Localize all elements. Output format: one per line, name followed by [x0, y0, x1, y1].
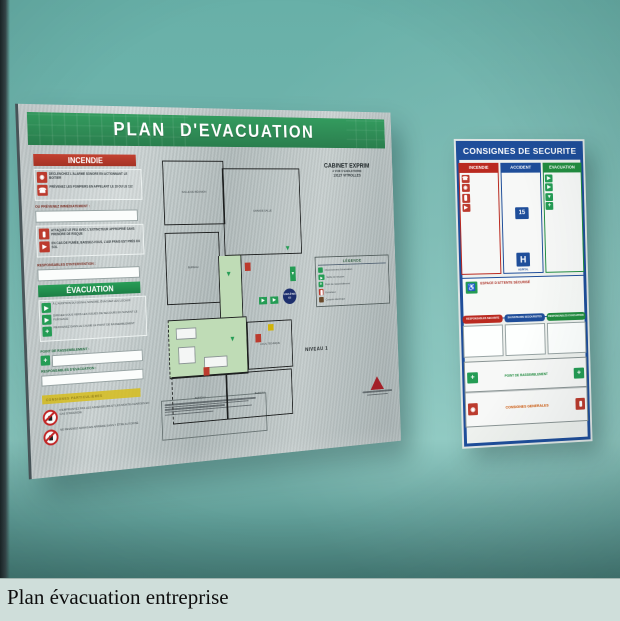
alarm-button-icon — [37, 172, 48, 183]
assembly-icon — [546, 202, 554, 210]
room-label: SALLE DE RÉUNION — [182, 191, 207, 195]
instruction-text: EN CAS DE FUMÉE, BAISSEZ-VOUS, L'AIR FRA… — [51, 239, 141, 249]
caption-text: Plan évacuation entreprise — [7, 585, 229, 610]
assembly-point-icon — [319, 282, 324, 288]
responsables-pills: RESPONSABLES SECURITE SAUVETEURS SECOURI… — [463, 312, 587, 358]
general-instructions-band: CONSIGNES GENERALES — [465, 386, 589, 428]
exit-man-icon — [41, 303, 51, 313]
incendie-header: INCENDIE — [33, 154, 136, 166]
legend-label: Sortie de secours — [326, 275, 344, 279]
evacuation-box: À L'AUDITION DU SIGNAL SONORE, ÉVACUEZ L… — [38, 296, 147, 342]
instruction-text: DÉCLENCHEZ L'ALARME SONORE EN ACTIONNANT… — [49, 172, 139, 180]
photo-scene: PLAN D'EVACUATION INCENDIE DÉCLENCHEZ L'… — [0, 0, 620, 578]
phone-icon — [37, 185, 48, 196]
security-title: CONSIGNES DE SECURITE — [457, 142, 582, 160]
room-bureau-2: BUREAU — [171, 373, 228, 424]
logo-triangle-icon — [370, 376, 384, 390]
publisher-logo — [360, 375, 395, 398]
exit-arrow-icon: ▼ — [284, 245, 291, 252]
assembly-icon — [42, 326, 52, 336]
pill-label: RESPONSABLES EVACUATION — [546, 312, 585, 321]
hospital-label: HOPITAL — [518, 268, 528, 271]
extinguisher-icon — [319, 289, 324, 295]
map-pattern — [346, 119, 385, 149]
extinguisher-marker-icon — [245, 263, 251, 272]
exit-man-icon — [545, 174, 553, 182]
pill-box — [547, 321, 587, 354]
phone-icon — [461, 174, 469, 182]
evacuation-plan-sign: PLAN D'EVACUATION INCENDIE DÉCLENCHEZ L'… — [15, 104, 401, 480]
corridor — [218, 255, 243, 318]
column-header: ACCIDENT — [501, 163, 541, 172]
exit-door-icon — [318, 274, 324, 280]
column-accident: ACCIDENT 15 H HOPITAL — [501, 163, 544, 274]
alarm-marker-icon — [268, 324, 274, 331]
exit-sign-icon: ▼ — [290, 266, 296, 281]
fire-exit-icon — [462, 204, 470, 212]
route-icon — [42, 315, 52, 325]
smoke-crawl-icon — [39, 241, 50, 252]
instruction-text: ATTAQUEZ LE FEU AVEC L'EXTINCTEUR APPROP… — [51, 227, 141, 237]
security-columns: INCENDIE ACCIDENT 15 H HOPITAL — [457, 163, 585, 275]
caption-bar: Plan évacuation entreprise — [0, 578, 620, 621]
room-grande-salle: GRANDE SALLE — [222, 168, 302, 256]
alarm-icon — [468, 403, 478, 415]
route-arrow-icon — [318, 267, 323, 273]
you-are-here-marker: VOUS ÊTES ICI — [283, 288, 297, 304]
extinguisher-marker-icon — [255, 334, 261, 343]
room-bureau: BUREAU — [165, 232, 222, 305]
exit-sign-icon: ▶ — [259, 297, 267, 305]
incendie-box2: ATTAQUEZ LE FEU AVEC L'EXTINCTEUR APPROP… — [36, 224, 145, 258]
pill-label: SAUVETEURS SECOURISTES — [505, 313, 545, 322]
floor-plan: SALLE DE RÉUNION GRANDE SALLE BUREAU LOC… — [157, 153, 311, 427]
route-icon — [545, 183, 553, 191]
legend-label: Extincteur — [325, 290, 335, 294]
company-block: CABINET EXPRIM 4 VOIE D'ANGLETERRE 13127… — [305, 163, 387, 177]
column-incendie: INCENDIE — [458, 163, 501, 275]
legend-label: Point de rassemblement — [325, 282, 350, 287]
map-pattern — [27, 112, 189, 147]
column-header: EVACUATION — [542, 163, 581, 172]
extinguisher-marker-icon — [203, 367, 209, 376]
column-header: INCENDIE — [458, 163, 499, 172]
room-label: LOCAL TECHNIQUE — [260, 342, 280, 346]
security-title-label: CONSIGNES DE SECURITE — [463, 146, 577, 156]
extinguisher-icon — [39, 228, 50, 239]
room-bureau-3: BUREAU — [225, 368, 293, 419]
no-elevator-icon — [43, 409, 59, 426]
assembly-point-icon — [574, 367, 585, 378]
instruction-text: À L'AUDITION DU SIGNAL SONORE, ÉVACUEZ L… — [53, 299, 131, 306]
security-instructions-sign: CONSIGNES DE SECURITE INCENDIE ACCIDENT … — [454, 139, 593, 449]
notify-field — [35, 209, 138, 222]
instruction-text: PRÉVENEZ LES POMPIERS EN APPELANT LE 18 … — [49, 185, 132, 189]
legend-label: Cheminement d'évacuation — [325, 267, 353, 272]
notice-title: ESPACE D'ATTENTE SÉCURISÉ — [480, 279, 581, 286]
room-label: BUREAU — [195, 396, 206, 400]
exit-arrow-icon: ▼ — [229, 335, 236, 343]
cutoff-icon — [319, 297, 324, 303]
room-label: GRANDE SALLE — [253, 210, 272, 214]
wheelchair-icon: ♿ — [466, 281, 478, 293]
extinguisher-icon — [575, 398, 585, 410]
legend-title: LÉGENDE — [318, 257, 386, 265]
assembly-point-icon — [467, 372, 478, 383]
room-meeting: SALLE DE RÉUNION — [162, 161, 225, 226]
rally-label: POINT DE RASSEMBLEMENT — [481, 371, 571, 379]
column-evacuation: EVACUATION — [542, 163, 584, 273]
no-return-icon — [43, 429, 59, 446]
legend-label: Coupure électrique — [326, 297, 345, 301]
room-label: BUREAU — [188, 266, 199, 270]
exit-arrow-icon: ▼ — [225, 271, 232, 279]
plan-title-band: PLAN D'EVACUATION — [27, 112, 385, 148]
evacuation-header-label: ÉVACUATION — [66, 284, 113, 295]
alarm-button-icon — [461, 184, 469, 192]
pill-box — [505, 323, 545, 357]
incendie-header-label: INCENDIE — [68, 156, 103, 165]
room-label: BUREAU — [255, 392, 265, 396]
legend-box: LÉGENDE Cheminement d'évacuation Sortie … — [315, 254, 390, 307]
wall-corner-shadow — [0, 0, 10, 578]
incendie-box: DÉCLENCHEZ L'ALARME SONORE EN ACTIONNANT… — [34, 169, 143, 201]
stairs-icon — [545, 193, 553, 201]
samu-15-icon: 15 — [515, 207, 529, 219]
company-address2: 13127 VITROLLES — [306, 173, 388, 178]
assembly-point-icon — [41, 355, 51, 366]
exit-sign-icon: ▶ — [270, 296, 278, 304]
you-are-here-label: VOUS ÊTES ICI — [283, 293, 297, 300]
hospital-icon: H — [516, 253, 530, 267]
pill-box — [463, 324, 504, 358]
general-title: CONSIGNES GENERALES — [481, 402, 573, 411]
extinguisher-icon — [462, 193, 470, 202]
pill-label: RESPONSABLES SECURITE — [463, 315, 504, 324]
